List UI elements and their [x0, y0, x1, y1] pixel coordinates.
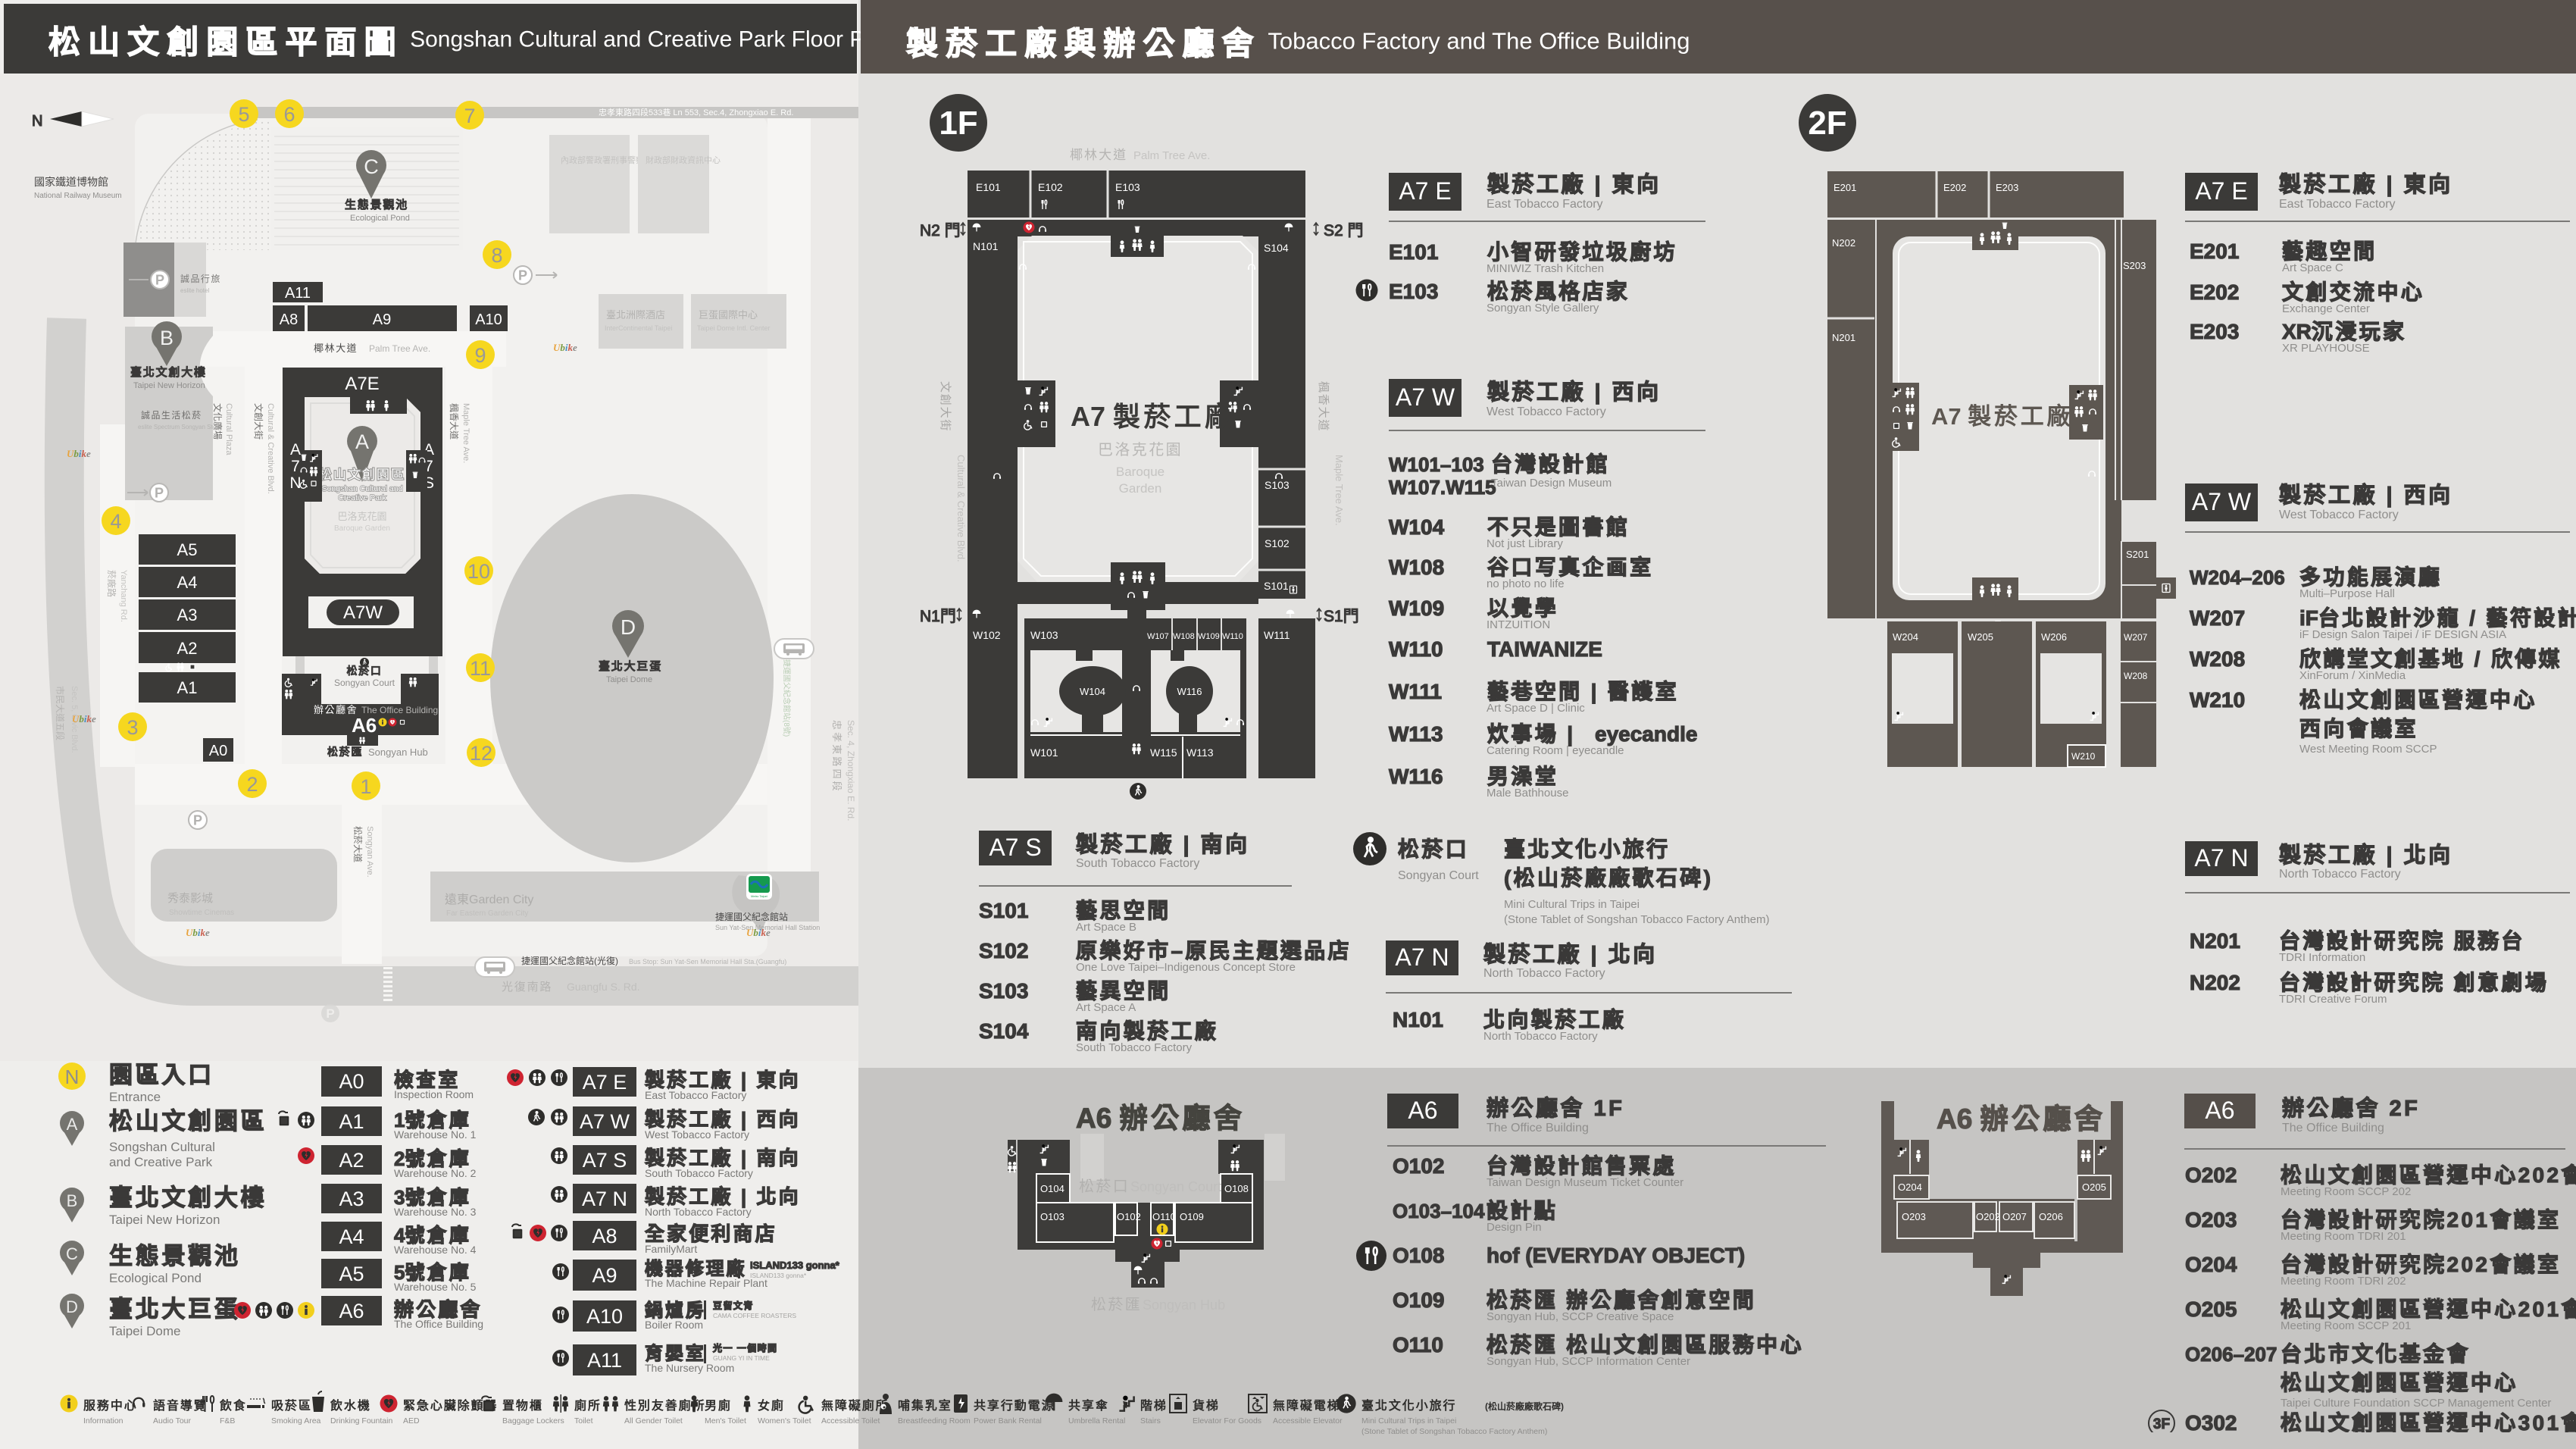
svg-text:松山文創園區: 松山文創園區	[319, 468, 405, 482]
svg-text:Warehouse No. 3: Warehouse No. 3	[394, 1206, 477, 1218]
svg-text:捷運國父紀念館站(光復): 捷運國父紀念館站(光復)	[521, 955, 618, 966]
svg-text:A7 W: A7 W	[2192, 488, 2252, 515]
svg-text:Exchange Center: Exchange Center	[2282, 302, 2370, 315]
svg-text:A11: A11	[587, 1349, 622, 1372]
svg-text:TDRI Information: TDRI Information	[2279, 951, 2365, 964]
svg-text:A: A	[355, 430, 369, 453]
svg-text:製菸工廠 | 西向: 製菸工廠 | 西向	[645, 1108, 801, 1131]
svg-text:12: 12	[470, 742, 492, 765]
svg-text:共享傘: 共享傘	[1068, 1398, 1109, 1413]
svg-text:W116: W116	[1389, 765, 1443, 788]
svg-text:女廁: 女廁	[758, 1398, 785, 1413]
svg-text:South Tobacco Factory: South Tobacco Factory	[1076, 1041, 1193, 1054]
svg-text:TDRI Creative Forum: TDRI Creative Forum	[2279, 993, 2387, 1006]
svg-text:A7 製菸工廠: A7 製菸工廠	[1931, 403, 2073, 430]
svg-text:E103: E103	[1389, 280, 1438, 303]
svg-text:GUANG YI IN TIME: GUANG YI IN TIME	[713, 1354, 770, 1362]
svg-text:藝異空間: 藝異空間	[1076, 978, 1171, 1003]
svg-text:男廁: 男廁	[705, 1398, 732, 1413]
svg-text:Metro Taipei: Metro Taipei	[751, 894, 767, 898]
svg-text:A3: A3	[339, 1188, 364, 1210]
svg-text:語音導覽: 語音導覽	[153, 1398, 208, 1413]
svg-text:階梯: 階梯	[1140, 1398, 1168, 1413]
svg-text:機器修理廠: 機器修理廠	[645, 1258, 746, 1279]
svg-text:Men's Toilet: Men's Toilet	[705, 1416, 746, 1426]
svg-text:松菸匯: 松菸匯	[327, 746, 363, 758]
svg-text:廁所: 廁所	[574, 1398, 602, 1413]
svg-text:Taipei New Horizon: Taipei New Horizon	[133, 381, 205, 390]
svg-text:P: P	[326, 1006, 334, 1021]
svg-text:椰林大道: 椰林大道	[314, 343, 358, 354]
svg-text:W107.W115: W107.W115	[1389, 476, 1496, 499]
svg-text:Art Space B: Art Space B	[1076, 921, 1136, 934]
svg-text:生態景觀池: 生態景觀池	[345, 199, 408, 211]
svg-text:B: B	[67, 1191, 78, 1210]
svg-text:Male Bathhouse: Male Bathhouse	[1487, 787, 1568, 800]
svg-text:文創大街: 文創大街	[939, 381, 952, 432]
svg-text:All Gender Toilet: All Gender Toilet	[624, 1416, 683, 1426]
svg-text:N201: N201	[2190, 929, 2240, 953]
svg-text:Guangfu S. Rd.: Guangfu S. Rd.	[567, 981, 640, 993]
svg-text:Songyan Ave.: Songyan Ave.	[365, 826, 374, 878]
svg-text:Far Eastern Garden City: Far Eastern Garden City	[446, 909, 528, 918]
svg-text:Information: Information	[83, 1416, 123, 1426]
svg-text:W206: W206	[2041, 631, 2067, 643]
svg-text:Multi–Purpose Hall: Multi–Purpose Hall	[2299, 587, 2395, 600]
svg-text:East Tobacco Factory: East Tobacco Factory	[645, 1089, 746, 1101]
svg-text:光一 一個時間: 光一 一個時間	[712, 1342, 777, 1354]
svg-text:A7 E: A7 E	[1399, 177, 1451, 205]
svg-text:製菸工廠 | 南向: 製菸工廠 | 南向	[645, 1147, 801, 1169]
svg-text:(松山菸廠廠歌石碑): (松山菸廠廠歌石碑)	[1504, 865, 1713, 890]
svg-text:臺北洲際酒店: 臺北洲際酒店	[606, 309, 665, 321]
svg-text:財政部財政資訊中心: 財政部財政資訊中心	[646, 155, 721, 165]
svg-text:台灣設計館: 台灣設計館	[1491, 452, 1610, 476]
svg-text:飲水機: 飲水機	[330, 1398, 371, 1413]
svg-text:Creative Park: Creative Park	[338, 493, 386, 502]
svg-text:eyecandle: eyecandle	[1595, 722, 1697, 746]
svg-text:The Machine Repair Plant: The Machine Repair Plant	[645, 1277, 767, 1289]
svg-text:Yanchang Rd.: Yanchang Rd.	[119, 570, 128, 622]
svg-text:S103: S103	[979, 979, 1028, 1003]
svg-text:Boiler Room: Boiler Room	[645, 1319, 703, 1331]
svg-text:Power Bank Rental: Power Bank Rental	[974, 1416, 1042, 1426]
svg-text:菸廠路: 菸廠路	[106, 570, 117, 597]
svg-text:North Tobacco Factory: North Tobacco Factory	[645, 1206, 752, 1218]
svg-text:W108: W108	[1389, 556, 1444, 579]
svg-text:Breastfeeding Room: Breastfeeding Room	[898, 1416, 971, 1426]
svg-text:A1: A1	[177, 678, 198, 697]
svg-text:無障礙電梯: 無障礙電梯	[1273, 1398, 1341, 1413]
svg-text:eslite hotel: eslite hotel	[180, 287, 209, 294]
svg-text:A6: A6	[352, 714, 377, 737]
svg-text:E203: E203	[2190, 320, 2239, 343]
svg-text:Palm Tree Ave.: Palm Tree Ave.	[369, 343, 430, 354]
svg-text:製菸工廠 | 西向: 製菸工廠 | 西向	[1487, 379, 1662, 405]
svg-text:A10: A10	[475, 311, 502, 328]
svg-text:Mini Cultural Trips in Taipei: Mini Cultural Trips in Taipei	[1361, 1416, 1456, 1426]
svg-text:Bus Stop: Sun Yat-Sen Memorial: Bus Stop: Sun Yat-Sen Memorial Hall Sta.…	[629, 958, 786, 965]
svg-text:West Tobacco Factory: West Tobacco Factory	[645, 1128, 749, 1141]
svg-text:A5: A5	[177, 540, 198, 559]
svg-text:8: 8	[491, 244, 502, 267]
svg-text:楓香大道: 楓香大道	[449, 403, 460, 440]
svg-text:臺北文創大樓: 臺北文創大樓	[130, 366, 207, 379]
svg-text:A8: A8	[280, 311, 298, 328]
svg-text:3: 3	[127, 716, 138, 739]
svg-text:Art Space D | Clinic: Art Space D | Clinic	[1487, 702, 1585, 715]
svg-text:ISLAND133 gonna*: ISLAND133 gonna*	[750, 1260, 840, 1271]
svg-text:INTZUITION: INTZUITION	[1487, 618, 1550, 631]
svg-text:A7 N: A7 N	[582, 1188, 627, 1210]
svg-text:Showtime Cinemas: Showtime Cinemas	[169, 909, 234, 917]
svg-text:1F: 1F	[939, 105, 977, 142]
svg-text:北向製菸工廠: 北向製菸工廠	[1483, 1007, 1626, 1031]
svg-text:Songyan Style Gallery: Songyan Style Gallery	[1487, 302, 1599, 315]
svg-text:A4: A4	[177, 573, 198, 592]
svg-text:(Stone Tablet of Songshan Toba: (Stone Tablet of Songshan Tobacco Factor…	[1361, 1427, 1547, 1436]
svg-text:S102: S102	[979, 939, 1028, 962]
svg-text:Ecological Pond: Ecological Pond	[350, 214, 410, 223]
svg-text:Cultural & Creative Blvd.: Cultural & Creative Blvd.	[955, 455, 967, 562]
svg-text:A: A	[67, 1115, 78, 1134]
svg-text:A0: A0	[209, 743, 227, 759]
svg-text:A2: A2	[339, 1149, 364, 1172]
svg-text:松菸口: 松菸口	[346, 665, 382, 677]
svg-text:S201: S201	[2126, 549, 2149, 560]
svg-text:W204–206: W204–206	[2190, 566, 2285, 589]
svg-text:A8: A8	[592, 1225, 617, 1247]
svg-text:A0: A0	[339, 1070, 364, 1093]
svg-text:E202: E202	[1943, 182, 1966, 193]
svg-text:Songyan Hub: Songyan Hub	[368, 746, 428, 758]
svg-text:Umbrella Rental: Umbrella Rental	[1068, 1416, 1125, 1426]
svg-text:育嬰室: 育嬰室	[645, 1343, 706, 1364]
svg-text:Smoking Area: Smoking Area	[271, 1416, 321, 1426]
svg-text:以覺學: 以覺學	[1487, 596, 1558, 620]
svg-text:N: N	[32, 113, 42, 130]
svg-text:A7 E: A7 E	[2195, 177, 2247, 205]
svg-text:W104: W104	[1389, 515, 1445, 539]
svg-text:10: 10	[467, 560, 490, 583]
svg-text:臺北大巨蛋: 臺北大巨蛋	[109, 1296, 241, 1322]
svg-text:製菸工廠 | 東向: 製菸工廠 | 東向	[645, 1069, 801, 1091]
svg-text:E201: E201	[2190, 239, 2239, 263]
svg-text:National Railway Museum: National Railway Museum	[34, 192, 122, 200]
svg-text:S203: S203	[2123, 260, 2146, 271]
svg-text:A10: A10	[586, 1305, 623, 1328]
svg-text:男澡堂: 男澡堂	[1487, 765, 1558, 788]
svg-text:Warehouse No. 5: Warehouse No. 5	[394, 1281, 477, 1293]
svg-text:Warehouse No. 4: Warehouse No. 4	[394, 1244, 477, 1256]
svg-text:貨梯: 貨梯	[1192, 1398, 1220, 1413]
svg-text:台灣設計研究院 服務台: 台灣設計研究院 服務台	[2279, 928, 2525, 953]
svg-text:A7N: A7N	[289, 441, 301, 492]
svg-text:A7W: A7W	[343, 602, 383, 623]
svg-text:原樂好市–原民主題選品店: 原樂好市–原民主題選品店	[1076, 938, 1352, 962]
svg-text:W113: W113	[1389, 722, 1443, 746]
svg-text:(松山菸廠廠歌石碑): (松山菸廠廠歌石碑)	[1485, 1400, 1564, 1412]
svg-text:Baggage Lockers: Baggage Lockers	[502, 1416, 564, 1426]
svg-text:The Office Building: The Office Building	[394, 1318, 483, 1330]
svg-text:秀泰影城: 秀泰影城	[167, 892, 213, 905]
svg-text:Elevator For Goods: Elevator For Goods	[1193, 1416, 1261, 1426]
svg-text:Songshan Cultural and: Songshan Cultural and	[322, 484, 403, 493]
svg-text:鍋爐房: 鍋爐房	[645, 1300, 706, 1321]
svg-text:West Tobacco Factory: West Tobacco Factory	[1487, 405, 1606, 418]
svg-text:藝巷空間 | 醫護室: 藝巷空間 | 醫護室	[1487, 679, 1679, 703]
svg-text:2F: 2F	[1808, 105, 1846, 142]
svg-text:InterContinental Taipei: InterContinental Taipei	[605, 324, 672, 332]
svg-text:West Tobacco Factory: West Tobacco Factory	[2279, 509, 2399, 521]
svg-text:台灣設計研究院 創意劇場: 台灣設計研究院 創意劇場	[2279, 970, 2549, 994]
svg-text:多功能展演廳: 多功能展演廳	[2299, 565, 2442, 589]
svg-text:N201: N201	[1832, 332, 1855, 343]
svg-text:Art Space C: Art Space C	[2282, 261, 2343, 274]
svg-text:A7E: A7E	[345, 374, 379, 394]
svg-text:製菸工廠 | 北向: 製菸工廠 | 北向	[1483, 941, 1658, 967]
svg-text:D: D	[621, 615, 636, 639]
svg-text:XinForum / XinMedia: XinForum / XinMedia	[2299, 669, 2406, 682]
svg-text:文創交流中心: 文創交流中心	[2282, 280, 2424, 304]
svg-text:4: 4	[110, 510, 121, 533]
svg-text:AED: AED	[403, 1416, 420, 1426]
svg-text:A2: A2	[177, 639, 198, 658]
svg-text:臺北文創大樓: 臺北文創大樓	[109, 1185, 267, 1211]
svg-text:Taipei New Horizon: Taipei New Horizon	[109, 1213, 220, 1227]
svg-text:欣講堂文創基地 / 欣傳媒: 欣講堂文創基地 / 欣傳媒	[2299, 646, 2562, 671]
svg-text:Mini Cultural Trips in Taipei: Mini Cultural Trips in Taipei	[1504, 898, 1640, 911]
svg-text:Warehouse No. 1: Warehouse No. 1	[394, 1128, 477, 1141]
svg-text:F&B: F&B	[220, 1416, 235, 1426]
svg-text:S104: S104	[979, 1019, 1029, 1043]
svg-text:園區入口: 園區入口	[109, 1062, 214, 1088]
svg-text:S101: S101	[979, 899, 1028, 922]
svg-text:飲食: 飲食	[219, 1398, 247, 1413]
svg-text:A7 W: A7 W	[580, 1110, 630, 1133]
svg-text:光復南路: 光復南路	[502, 981, 552, 994]
svg-text:N101: N101	[1393, 1008, 1443, 1031]
svg-text:Art Space A: Art Space A	[1076, 1001, 1136, 1014]
svg-text:FamilyMart: FamilyMart	[645, 1243, 697, 1255]
svg-text:Songshan Cultural: Songshan Cultural	[109, 1140, 215, 1154]
svg-text:不只是圖書館: 不只是圖書館	[1487, 515, 1630, 539]
svg-text:Stairs: Stairs	[1140, 1416, 1161, 1426]
svg-text:藝趣空間: 藝趣空間	[2282, 239, 2377, 263]
svg-text:小智研發垃圾廚坊: 小智研發垃圾廚坊	[1487, 239, 1677, 264]
svg-text:松山文創園區: 松山文創園區	[109, 1108, 267, 1134]
svg-text:Toilet: Toilet	[574, 1416, 593, 1426]
svg-text:eslite Spectrum Songyan Store: eslite Spectrum Songyan Store	[138, 424, 222, 430]
svg-text:Not just Library: Not just Library	[1487, 537, 1563, 550]
svg-text:W207: W207	[2124, 632, 2148, 643]
svg-text:North Tobacco Factory: North Tobacco Factory	[2279, 868, 2401, 881]
svg-text:南向製菸工廠: 南向製菸工廠	[1076, 1019, 1218, 1043]
svg-text:South Tobacco Factory: South Tobacco Factory	[645, 1167, 753, 1179]
svg-text:A7 W: A7 W	[1396, 383, 1455, 411]
svg-text:W111: W111	[1389, 680, 1442, 703]
svg-text:製菸工廠 | 南向: 製菸工廠 | 南向	[1076, 831, 1250, 857]
svg-text:Taipei Dome: Taipei Dome	[109, 1324, 181, 1338]
svg-text:Cultural Plaza: Cultural Plaza	[224, 403, 233, 455]
svg-text:製菸工廠 | 北向: 製菸工廠 | 北向	[2279, 842, 2453, 868]
svg-text:Songyan Court: Songyan Court	[334, 678, 395, 688]
svg-text:Maple Tree Ave.: Maple Tree Ave.	[461, 403, 470, 463]
svg-text:C: C	[364, 155, 379, 178]
svg-text:松菸風格店家: 松菸風格店家	[1487, 279, 1630, 303]
svg-text:巨蛋國際中心: 巨蛋國際中心	[699, 309, 758, 321]
svg-text:XR沉浸玩家: XR沉浸玩家	[2282, 319, 2406, 343]
svg-text:共享行動電源: 共享行動電源	[974, 1398, 1055, 1413]
svg-text:(Stone Tablet of Songshan Toba: (Stone Tablet of Songshan Tobacco Factor…	[1504, 913, 1770, 926]
svg-text:誠品生活松菸: 誠品生活松菸	[141, 410, 202, 421]
svg-text:A7 S: A7 S	[989, 834, 1041, 861]
svg-text:Catering Room | eyecandle: Catering Room | eyecandle	[1487, 744, 1624, 757]
svg-text:D: D	[66, 1297, 78, 1316]
svg-text:9: 9	[474, 344, 486, 367]
svg-text:1: 1	[360, 775, 371, 798]
svg-text:巴洛克花園: 巴洛克花園	[337, 511, 386, 522]
svg-text:炊事場 |: 炊事場 |	[1487, 722, 1575, 746]
svg-text:North Tobacco Factory: North Tobacco Factory	[1483, 967, 1605, 980]
svg-text:製菸工廠 | 東向: 製菸工廠 | 東向	[1487, 171, 1662, 197]
svg-text:TAIWANIZE: TAIWANIZE	[1487, 637, 1602, 661]
svg-text:B: B	[160, 327, 174, 349]
svg-text:吸菸區: 吸菸區	[271, 1398, 312, 1413]
svg-text:Taiwan Design Museum: Taiwan Design Museum	[1491, 477, 1612, 490]
svg-text:文化廣場: 文化廣場	[212, 403, 224, 440]
svg-text:East Tobacco Factory: East Tobacco Factory	[2279, 198, 2396, 211]
svg-text:松菸大道: 松菸大道	[352, 826, 363, 862]
svg-text:W110: W110	[1389, 637, 1443, 661]
svg-text:6: 6	[283, 103, 295, 126]
svg-text:iF Design Salon Taipei / iF DE: iF Design Salon Taipei / iF DESIGN ASIA	[2299, 628, 2506, 641]
svg-text:松山文創園區營運中心: 松山文創園區營運中心	[2299, 687, 2537, 712]
svg-text:North Tobacco Factory: North Tobacco Factory	[1483, 1030, 1598, 1043]
svg-text:W208: W208	[2124, 671, 2148, 681]
svg-text:忠孝東路四段533巷 Ln 553, Sec.4, Zhon: 忠孝東路四段533巷 Ln 553, Sec.4, Zhongxiao E. R…	[599, 107, 793, 117]
svg-text:Inspection Room: Inspection Room	[394, 1088, 474, 1100]
svg-text:誠品行旅: 誠品行旅	[180, 274, 221, 284]
svg-text:N1門: N1門	[920, 608, 956, 625]
svg-text:Warehouse No. 2: Warehouse No. 2	[394, 1167, 477, 1179]
svg-text:MINIWIZ Trash Kitchen: MINIWIZ Trash Kitchen	[1487, 262, 1604, 275]
svg-text:E203: E203	[1996, 182, 2018, 193]
svg-text:豆留文青: 豆留文青	[713, 1300, 754, 1311]
svg-text:Ecological Pond: Ecological Pond	[109, 1271, 202, 1285]
svg-text:7: 7	[464, 105, 475, 127]
svg-text:A11: A11	[285, 285, 311, 302]
svg-text:CAMA COFFEE ROASTERS: CAMA COFFEE ROASTERS	[713, 1312, 796, 1319]
svg-text:One Love Taipei–Indigenous Con: One Love Taipei–Indigenous Concept Store	[1076, 961, 1296, 974]
svg-text:Taipei Dome: Taipei Dome	[606, 675, 652, 684]
svg-text:XR PLAYHOUSE: XR PLAYHOUSE	[2282, 342, 2370, 355]
svg-text:製菸工廠 | 東向: 製菸工廠 | 東向	[2279, 171, 2453, 197]
svg-text:2: 2	[246, 773, 258, 796]
svg-text:W109: W109	[1389, 596, 1444, 620]
svg-text:置物櫃: 置物櫃	[502, 1398, 543, 1413]
svg-text:西向會議室: 西向會議室	[2299, 716, 2418, 740]
svg-text:Songyan Court: Songyan Court	[1398, 869, 1479, 882]
svg-text:E202: E202	[2190, 280, 2239, 304]
svg-text:臺北大巨蛋: 臺北大巨蛋	[599, 660, 662, 673]
svg-text:捷運國父紀念館站: 捷運國父紀念館站	[715, 911, 788, 922]
svg-text:臺北文化小旅行: 臺北文化小旅行	[1504, 837, 1671, 861]
svg-text:South Tobacco Factory: South Tobacco Factory	[1076, 857, 1199, 870]
svg-text:E201: E201	[1834, 182, 1856, 193]
svg-text:Cultural & Creative Blvd.: Cultural & Creative Blvd.	[266, 403, 275, 494]
svg-text:West Meeting Room SCCP: West Meeting Room SCCP	[2299, 743, 2437, 756]
svg-text:A6: A6	[339, 1300, 364, 1322]
svg-text:遠東Garden City: 遠東Garden City	[445, 893, 533, 906]
svg-text:無障礙廁所: 無障礙廁所	[821, 1398, 889, 1413]
svg-text:E101: E101	[1389, 240, 1438, 264]
svg-text:N202: N202	[1832, 237, 1855, 249]
svg-text:A4: A4	[339, 1225, 364, 1248]
svg-text:Women's Toilet: Women's Toilet	[758, 1416, 811, 1426]
svg-text:藝思空間: 藝思空間	[1076, 898, 1171, 922]
svg-text:C: C	[66, 1244, 78, 1263]
svg-text:N202: N202	[2190, 971, 2240, 994]
svg-text:Audio Tour: Audio Tour	[153, 1416, 192, 1426]
svg-text:服務中心: 服務中心	[83, 1398, 138, 1413]
svg-text:no photo no life: no photo no life	[1487, 577, 1565, 590]
svg-text:Accessible Elevator: Accessible Elevator	[1273, 1416, 1343, 1426]
svg-text:W204: W204	[1893, 631, 1918, 643]
svg-text:Drinking Fountain: Drinking Fountain	[330, 1416, 392, 1426]
svg-text:W210: W210	[2071, 751, 2096, 762]
svg-text:A7 S: A7 S	[583, 1149, 627, 1172]
svg-text:哺集乳室: 哺集乳室	[898, 1398, 952, 1413]
svg-text:The Nursery Room: The Nursery Room	[645, 1362, 734, 1374]
svg-text:W207: W207	[2190, 606, 2245, 630]
svg-text:A9: A9	[592, 1264, 617, 1287]
svg-text:5: 5	[238, 103, 249, 126]
svg-text:臺北文化小旅行: 臺北文化小旅行	[1361, 1398, 1456, 1413]
svg-text:忠孝東路四段: 忠孝東路四段	[831, 720, 843, 793]
svg-text:國家鐵道博物館: 國家鐵道博物館	[34, 176, 108, 188]
svg-text:A7 N: A7 N	[2194, 844, 2248, 872]
svg-text:iF台北設計沙龍 / 藝符設計: iF台北設計沙龍 / 藝符設計	[2299, 606, 2576, 630]
svg-text:Taipei Dome Intl. Center: Taipei Dome Intl. Center	[697, 324, 771, 332]
svg-text:A5: A5	[339, 1263, 364, 1285]
svg-text:East Tobacco Factory: East Tobacco Factory	[1487, 198, 1603, 211]
svg-text:A7 E: A7 E	[583, 1071, 627, 1094]
svg-text:Accessible Toilet: Accessible Toilet	[821, 1416, 880, 1426]
svg-text:全家便利商店: 全家便利商店	[645, 1222, 777, 1245]
svg-text:Entrance: Entrance	[109, 1090, 161, 1104]
svg-text:製菸工廠 | 西向: 製菸工廠 | 西向	[2279, 482, 2453, 508]
svg-text:N2 門: N2 門	[920, 222, 961, 239]
svg-text:W210: W210	[2190, 688, 2245, 712]
svg-text:A7 N: A7 N	[1395, 944, 1449, 971]
svg-text:谷口写真企画室: 谷口写真企画室	[1487, 555, 1654, 579]
svg-text:A3: A3	[177, 606, 198, 624]
svg-text:W205: W205	[1968, 631, 1993, 643]
svg-text:N: N	[65, 1066, 80, 1088]
svg-text:W208: W208	[2190, 647, 2245, 671]
svg-text:Sec. 4, Zhongxiao E. Rd.: Sec. 4, Zhongxiao E. Rd.	[846, 720, 856, 821]
svg-text:A9: A9	[373, 311, 391, 328]
svg-text:捷運國父紀念館站(8號): 捷運國父紀念館站(8號)	[782, 659, 792, 737]
svg-text:W101–103: W101–103	[1389, 453, 1484, 476]
svg-text:文創大街: 文創大街	[253, 403, 264, 440]
svg-text:and Creative Park: and Creative Park	[109, 1155, 213, 1169]
svg-text:Baroque Garden: Baroque Garden	[334, 524, 390, 533]
svg-text:市民大道五段: 市民大道五段	[55, 686, 66, 740]
svg-text:松菸口: 松菸口	[1398, 837, 1469, 861]
svg-text:A1: A1	[339, 1110, 364, 1133]
